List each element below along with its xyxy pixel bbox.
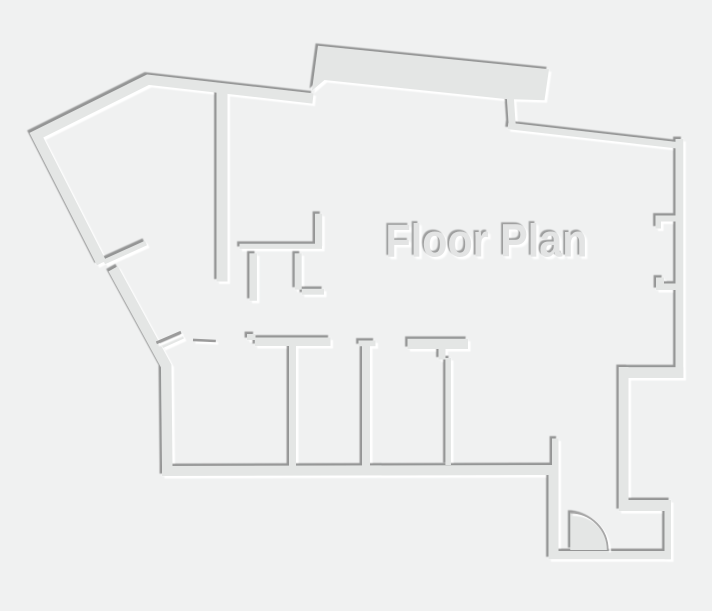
svg-text:Floor Plan: Floor Plan [386,215,588,267]
